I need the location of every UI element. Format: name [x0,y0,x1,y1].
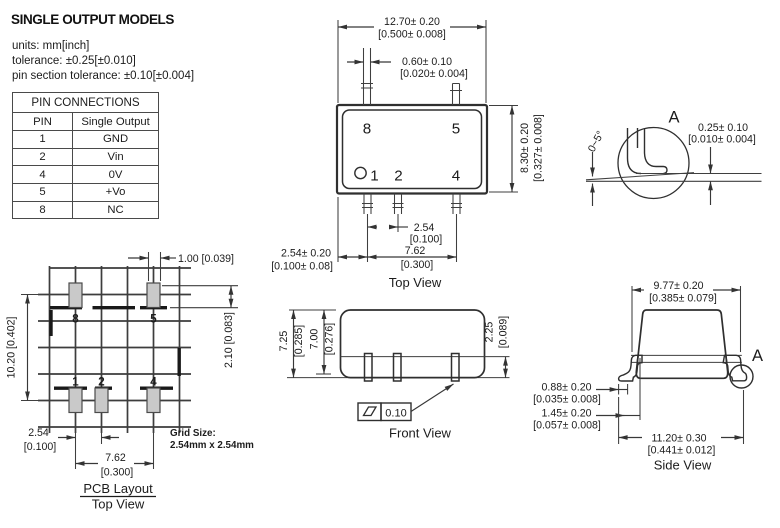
flatness-value: 0.10 [385,408,406,420]
side-view-label: Side View [654,458,712,473]
lead-foot-detail [628,128,668,174]
width-dim-inch: [0.500± 0.008] [378,29,446,41]
coplanarity-inch: [0.010± 0.004] [688,134,756,146]
pcb-pin1: 1 [72,377,79,389]
front-view-label: Front View [389,426,452,441]
sidetotal-value: 11.20± 0.30 [651,433,706,445]
detail-a: 0~5° 0.25± 0.10 [0.010± 0.004] A [586,109,762,207]
pcb-pin5: 5 [150,314,157,326]
span-dim-value: 7.62 [405,245,426,257]
padwidth-value: 1.00 [0.039] [178,253,234,265]
pitch-dim-value: 2.54 [414,222,435,234]
pin4-number: 4 [452,168,460,185]
pad-2 [95,388,108,413]
pad-4 [147,388,160,413]
pad-8 [69,283,82,308]
pin2-number: 2 [394,168,402,185]
foot-inch: [0.035± 0.008] [533,394,601,406]
pin1-number: 1 [370,168,378,185]
offset-dim-inch: [0.100± 0.08] [271,261,333,273]
side-body-edge-segments [637,355,726,362]
pin1-marker [355,167,366,178]
front-standoff-inch: [0.089] [498,316,510,348]
top-view-label: Top View [389,275,442,290]
side-view: A 9.77± 0.20 [0.385± 0.079] 0.88± 0.20 [… [533,280,763,473]
pcbheight-value: 10.20 [0.402] [6,317,18,379]
front-h2-inch: [0.276] [324,323,336,355]
height-dim-value: 8.30± 0.20 [519,123,531,173]
top-view: 8 5 1 2 4 12.70± 0.20 [0.500± 0.008] [271,16,544,290]
datasheet-page: SINGLE OUTPUT MODELS units: mm[inch] tol… [0,0,780,528]
detail-ref-label: A [752,347,763,365]
width-dim-value: 12.70± 0.20 [384,16,440,28]
pcbpitch-inch: [0.100] [24,441,56,453]
front-view: 7.25 [0.285] 7.00 [0.276] 2.25 [0.089] 0… [278,310,510,441]
pad-1 [69,388,82,413]
coplanarity-value: 0.25± 0.10 [698,122,748,134]
mechanical-drawing: 8 5 1 2 4 12.70± 0.20 [0.500± 0.008] [0,0,780,528]
pad-5 [147,283,160,308]
pcbedge-value: 2.10 [0.083] [223,312,235,368]
pcb-topview-label: Top View [92,497,145,512]
pinwidth-dim-inch: [0.020± 0.004] [400,68,468,80]
pcb-pin8: 8 [72,314,79,326]
height-dim-inch: [0.327± 0.008] [533,114,545,182]
pcb-grid [38,266,191,433]
side-body [636,310,727,378]
pcbspan-value: 7.62 [105,452,126,464]
front-h1-value: 7.25 [278,331,290,352]
flatness-leader [411,384,454,412]
offset-dim-value: 2.54± 0.20 [281,248,331,260]
height-ext-lines [489,106,518,193]
detail-circle [618,128,689,199]
pin5-number: 5 [452,121,460,138]
grid-note-1: Grid Size: [170,428,216,439]
pcb-layout: 8 5 1 2 4 1.00 [0.039] 10.20 [0.402] 2.1… [6,252,255,512]
pcbedge-ext [162,286,238,308]
lead-value: 1.45± 0.20 [542,408,592,420]
front-standoff-value: 2.25 [484,322,496,343]
pcb-pin2: 2 [98,377,104,389]
detail-a-label: A [668,109,679,127]
pinwidth-dim-value: 0.60± 0.10 [402,56,452,68]
lead-inch: [0.057± 0.008] [533,420,601,432]
sidetop-value: 9.77± 0.20 [654,280,704,292]
span-dim-inch: [0.300] [401,259,433,271]
front-body [341,310,485,378]
sidetotal-inch: [0.441± 0.012] [648,445,716,457]
pcb-pin4: 4 [150,377,157,389]
angle-value: 0~5° [586,129,607,154]
bottom-leads [338,194,462,263]
pcbpitch-ext [76,413,102,444]
pcbspan-inch: [0.300] [101,467,133,479]
package-body-outline [337,105,487,194]
pcb-layout-label: PCB Layout [83,481,153,496]
flatness-icon [364,407,377,416]
pin8-number: 8 [363,121,371,138]
flatness-callout: 0.10 [358,384,454,421]
pcbpitch-value: 2.54 [28,427,49,439]
sidetop-inch: [0.385± 0.079] [649,293,717,305]
foot-value: 0.88± 0.20 [542,382,592,394]
padwidth-ext [149,252,161,281]
front-h1-inch: [0.285] [293,325,305,357]
pitch-dim-inch: [0.100] [410,234,442,246]
grid-note-2: 2.54mm x 2.54mm [170,440,254,451]
front-h2-value: 7.00 [309,329,321,350]
